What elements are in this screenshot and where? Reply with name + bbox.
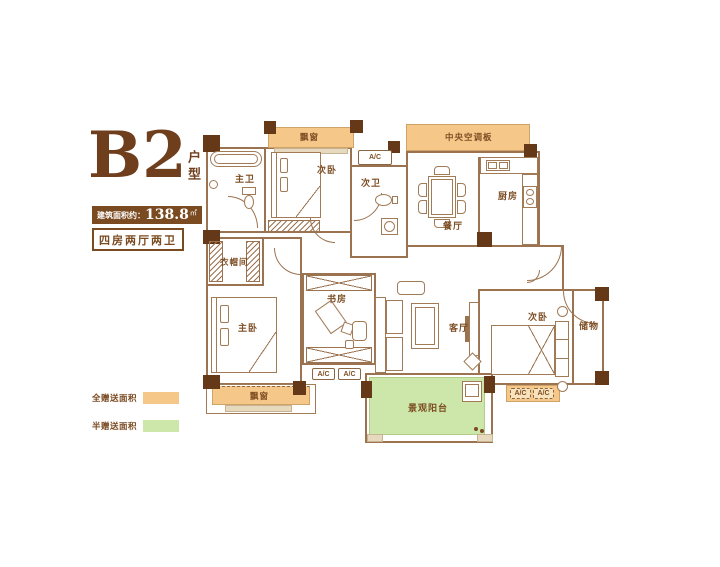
tv-stand-icon: [469, 302, 479, 356]
wall-column: [477, 232, 492, 247]
headboard-divider: [555, 339, 569, 340]
sofa-cushion: [386, 337, 403, 371]
room-label-living: 客厅: [449, 324, 469, 333]
headboard-divider: [555, 358, 569, 359]
wall-column: [524, 144, 537, 157]
bedside-lamp-icon: [557, 381, 568, 392]
dining-table-inner: [431, 179, 453, 215]
room-label-cloakroom: 衣帽间: [220, 258, 249, 267]
chair-icon: [457, 183, 466, 197]
balcony-sill-left: [367, 434, 383, 442]
wall-column: [293, 381, 306, 395]
toilet-bowl-icon: [375, 194, 392, 206]
wall-column: [203, 375, 220, 389]
room-label-bedroom2-top: 次卧: [317, 166, 337, 175]
pillow-icon: [280, 177, 288, 192]
stove-burner: [526, 198, 534, 205]
ac-unit-box-right: A/C: [533, 388, 554, 399]
bed-blanket-fold: [296, 186, 320, 217]
pillow-icon: [220, 305, 229, 323]
cloakroom-wall-h: [208, 284, 264, 286]
wall-column: [350, 120, 363, 133]
floor-drain-icon: [480, 429, 484, 433]
legend-half-gift-swatch: [143, 420, 179, 432]
chair-icon: [418, 200, 427, 214]
area-value: 138.8: [145, 207, 189, 223]
stove-burner: [526, 189, 534, 196]
wall-column: [264, 121, 276, 134]
wardrobe-hatch: [268, 220, 320, 232]
kitchen-sink-basin: [499, 162, 508, 169]
sofa-icon: [375, 297, 386, 373]
room-label-bath2: 次卫: [361, 179, 381, 188]
washbasin-icon: [209, 180, 218, 189]
pillow-icon: [280, 158, 288, 173]
area-unit: ㎡: [190, 208, 197, 218]
legend-full-gift-label: 全赠送面积: [92, 392, 137, 404]
bathtub-inner: [214, 154, 258, 164]
sofa-cushion: [386, 300, 403, 334]
toilet-tank-icon: [242, 187, 256, 195]
room-label-storage: 储物: [579, 322, 599, 331]
balcony-sill-right: [477, 434, 493, 442]
toilet-bowl-icon: [244, 195, 254, 209]
plan-code-suffix: 户型: [184, 150, 203, 184]
floorplan-page: B2 户型 建筑面积约：138.8㎡ 四房两厅两卫 全赠送面积 半赠送面积: [0, 0, 720, 567]
room-label-master-bedroom: 主卧: [238, 324, 258, 333]
ac-unit-box-study: A/C: [312, 368, 335, 380]
bed-blanket-fold: [528, 325, 555, 375]
bedside-lamp-icon: [557, 306, 568, 317]
study-window-x-bottom: [306, 347, 372, 363]
ac-unit-box-right: A/C: [510, 388, 531, 399]
bay-window-bottom-sill: [225, 405, 292, 412]
sink-basin: [384, 221, 395, 232]
study-window-x-top: [306, 275, 372, 291]
chair-icon: [434, 166, 450, 175]
ac-unit-box-study: A/C: [338, 368, 361, 380]
room-label-study: 书房: [327, 295, 347, 304]
washer-inner: [465, 384, 479, 397]
plan-code: B2: [88, 124, 187, 188]
pillow-icon: [220, 328, 229, 346]
room-label-kitchen: 厨房: [498, 192, 518, 201]
room-label-balcony: 景观阳台: [408, 404, 448, 413]
door-arc-entry-small: [527, 270, 540, 283]
room-label-master-bath: 主卫: [235, 175, 255, 184]
room-label-central-ac-panel: 中央空调板: [445, 133, 493, 142]
chair-icon: [345, 340, 354, 349]
area-badge: 建筑面积约：138.8㎡: [92, 206, 202, 224]
entry-wall-v: [562, 247, 564, 291]
cloakroom-wall-v: [262, 239, 264, 284]
kitchen-sink-basin: [488, 162, 497, 169]
wall-column: [484, 376, 495, 393]
ac-unit-box-top: A/C: [358, 150, 392, 165]
wall-column: [595, 287, 609, 301]
kitchen-counter-right: [522, 174, 538, 245]
wall-column: [203, 135, 220, 152]
wall-column: [595, 371, 609, 385]
room-label-bedroom2-right: 次卧: [528, 313, 548, 322]
bed-headboard: [211, 297, 217, 373]
room-config-box: 四房两厅两卫: [92, 228, 184, 251]
chair-icon: [418, 183, 427, 197]
side-table-icon: [352, 321, 367, 341]
room-label-bay-window-bottom: 飘窗: [250, 392, 269, 401]
wall-column: [361, 381, 372, 398]
side-table-icon: [397, 281, 425, 295]
legend-full-gift: 全赠送面积: [92, 392, 179, 404]
chair-icon: [457, 200, 466, 214]
bed-blanket-fold: [249, 332, 276, 372]
legend-half-gift-label: 半赠送面积: [92, 420, 137, 432]
room-label-bay-window-top: 飘窗: [300, 133, 319, 142]
bed-headboard: [555, 321, 569, 377]
legend-half-gift: 半赠送面积: [92, 420, 179, 432]
coffee-table-inner: [415, 307, 435, 345]
legend-full-gift-swatch: [143, 392, 179, 404]
area-label: 建筑面积约：: [97, 210, 145, 221]
floor-drain-icon: [474, 427, 478, 431]
room-label-dining: 餐厅: [443, 222, 463, 231]
bed-headboard: [271, 152, 277, 218]
toilet-tank-icon: [392, 196, 398, 204]
